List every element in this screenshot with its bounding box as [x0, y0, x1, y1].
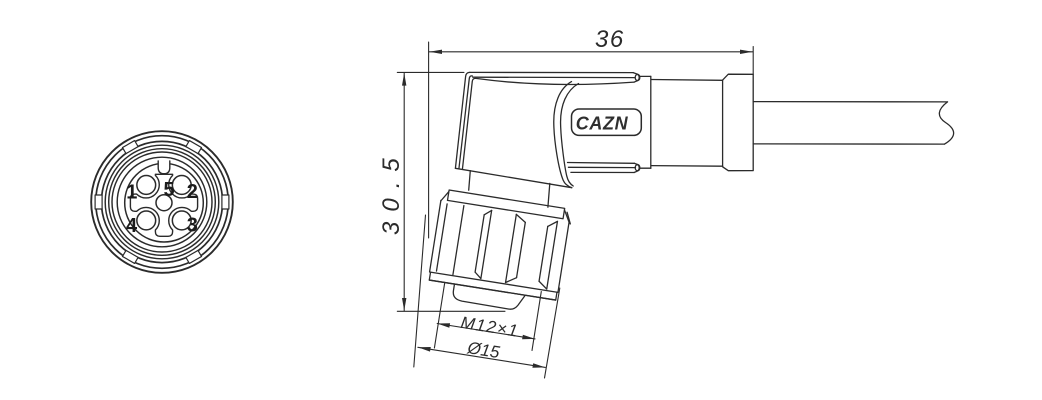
svg-text:1: 1	[126, 181, 137, 203]
svg-text:M12×1: M12×1	[459, 313, 520, 341]
svg-text:5: 5	[164, 179, 175, 201]
svg-text:2: 2	[187, 181, 198, 203]
svg-text:4: 4	[126, 215, 138, 237]
svg-text:3: 3	[187, 215, 198, 237]
svg-text:CAZN: CAZN	[576, 113, 629, 133]
svg-text:30.5: 30.5	[378, 148, 405, 235]
svg-text:Ø15: Ø15	[465, 338, 501, 362]
svg-text:36: 36	[595, 26, 625, 53]
